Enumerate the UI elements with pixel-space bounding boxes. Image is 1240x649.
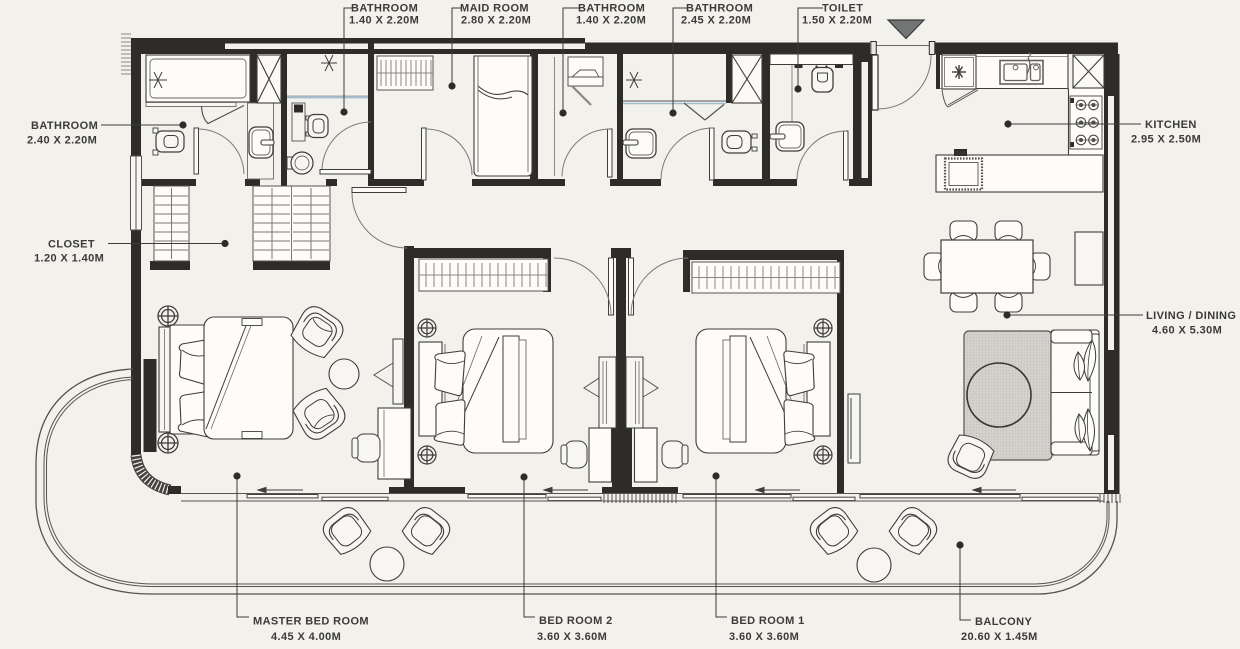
svg-text:BALCONY: BALCONY [975, 616, 1032, 628]
svg-text:LIVING / DINING: LIVING / DINING [1146, 310, 1236, 322]
svg-text:MAID ROOM: MAID ROOM [460, 3, 529, 15]
svg-text:BATHROOM: BATHROOM [31, 120, 98, 132]
svg-text:BATHROOM: BATHROOM [686, 3, 753, 15]
svg-text:1.40 X 2.20M: 1.40 X 2.20M [576, 15, 646, 27]
svg-text:1.40 X 2.20M: 1.40 X 2.20M [349, 15, 419, 27]
svg-text:TOILET: TOILET [822, 3, 863, 15]
svg-text:MASTER BED ROOM: MASTER BED ROOM [253, 616, 369, 628]
svg-text:4.45 X 4.00M: 4.45 X 4.00M [271, 631, 341, 643]
svg-text:20.60 X 1.45M: 20.60 X 1.45M [961, 631, 1038, 643]
svg-text:BED ROOM 1: BED ROOM 1 [731, 615, 805, 627]
svg-text:CLOSET: CLOSET [48, 239, 95, 251]
svg-text:2.95 X 2.50M: 2.95 X 2.50M [1131, 134, 1201, 146]
svg-text:2.40 X 2.20M: 2.40 X 2.20M [27, 135, 97, 147]
svg-text:3.60 X 3.60M: 3.60 X 3.60M [537, 631, 607, 643]
svg-text:4.60 X 5.30M: 4.60 X 5.30M [1152, 325, 1222, 337]
svg-text:2.45 X 2.20M: 2.45 X 2.20M [681, 15, 751, 27]
svg-text:BATHROOM: BATHROOM [578, 3, 645, 15]
svg-text:1.20 X 1.40M: 1.20 X 1.40M [34, 253, 104, 265]
svg-text:2.80 X 2.20M: 2.80 X 2.20M [461, 15, 531, 27]
svg-text:BATHROOM: BATHROOM [351, 3, 418, 15]
svg-text:KITCHEN: KITCHEN [1145, 119, 1197, 131]
svg-text:1.50 X 2.20M: 1.50 X 2.20M [802, 15, 872, 27]
svg-text:3.60 X 3.60M: 3.60 X 3.60M [729, 631, 799, 643]
svg-text:DW: DW [955, 151, 967, 158]
svg-text:BED ROOM 2: BED ROOM 2 [539, 615, 613, 627]
